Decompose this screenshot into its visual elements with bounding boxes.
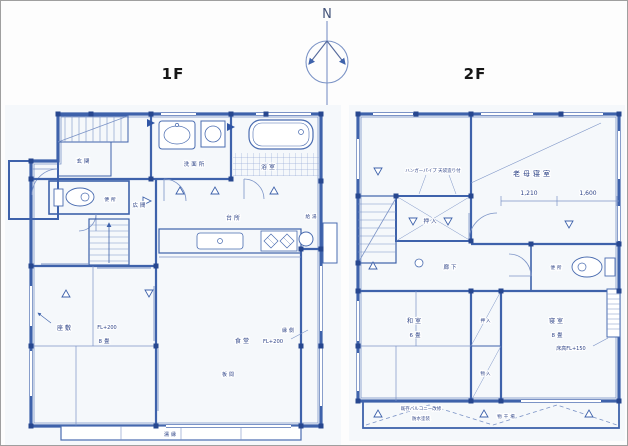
label-dining: 食堂 <box>235 337 251 345</box>
floor2-title: 2F <box>464 65 487 83</box>
dim-1600: 1,600 <box>579 190 596 197</box>
washing-machine-icon <box>201 121 225 147</box>
label-zashiki: 座敷 <box>57 324 73 332</box>
washbasin-icon <box>159 121 195 149</box>
label-bedroom-size: 8畳 <box>552 332 565 339</box>
label-bath: 浴室 <box>261 163 277 171</box>
label-itanoma: 板間 <box>222 371 236 378</box>
label-washroom: 洗面所 <box>184 160 207 168</box>
floor-plan-page: N 1F 2F <box>0 0 628 446</box>
north-arrow-icon: N <box>306 7 348 105</box>
label-balcony-note2: 防水塗装 <box>412 415 430 422</box>
veranda-strip-1f <box>61 426 301 440</box>
toilet-icon <box>54 188 94 206</box>
toilet-icon-2f <box>572 257 615 277</box>
label-kitchen: 台所 <box>226 214 242 222</box>
label-toilet-1f: 便所 <box>104 196 118 203</box>
kitchen-sink-icon <box>197 233 243 249</box>
label-bedroom: 寝室 <box>549 317 565 325</box>
corridor-symbol <box>415 259 423 267</box>
side-step-1f <box>323 223 337 263</box>
label-oshiire-mid: 押入 <box>481 317 492 324</box>
label-hiroma: 広間 <box>132 201 147 209</box>
label-oshiire-top: 押入 <box>423 217 438 225</box>
label-corridor: 廊下 <box>443 263 458 271</box>
label-washitsu-size: 6畳 <box>410 332 423 339</box>
north-label: N <box>322 7 332 22</box>
label-dining-level: FL+200 <box>263 339 283 345</box>
label-genkan: 玄関 <box>76 157 91 165</box>
stove-icon <box>261 231 297 251</box>
label-bedroom-level: 床高FL+150 <box>556 345 585 352</box>
label-toilet-2f: 便所 <box>551 264 564 271</box>
label-monohoshi: 物干場 <box>497 413 517 420</box>
dim-1210: 1,210 <box>520 190 537 197</box>
label-elder-bedroom: 老母寝室 <box>513 169 553 178</box>
label-closet-note: ハンガーパイプ 天袋造り付 <box>405 167 461 174</box>
label-zashiki-level: FL+200 <box>97 325 116 331</box>
water-heater-icon <box>299 232 313 246</box>
label-balcony-note1: 既存バルコニー改修 <box>401 405 442 412</box>
label-washitsu: 和室 <box>407 317 423 325</box>
label-nureen: 濡縁 <box>164 431 178 438</box>
floor1-title: 1F <box>162 65 185 83</box>
label-zashiki-size: 8畳 <box>99 338 112 345</box>
label-water-heater: 給湯 <box>306 213 319 220</box>
label-mono-mid: 物入 <box>481 370 492 377</box>
shutter-window-2f <box>607 289 620 337</box>
bathtub-icon <box>249 120 313 149</box>
label-engawa: 縁側 <box>282 327 296 334</box>
blueprint-canvas: N 1F 2F <box>1 1 628 446</box>
